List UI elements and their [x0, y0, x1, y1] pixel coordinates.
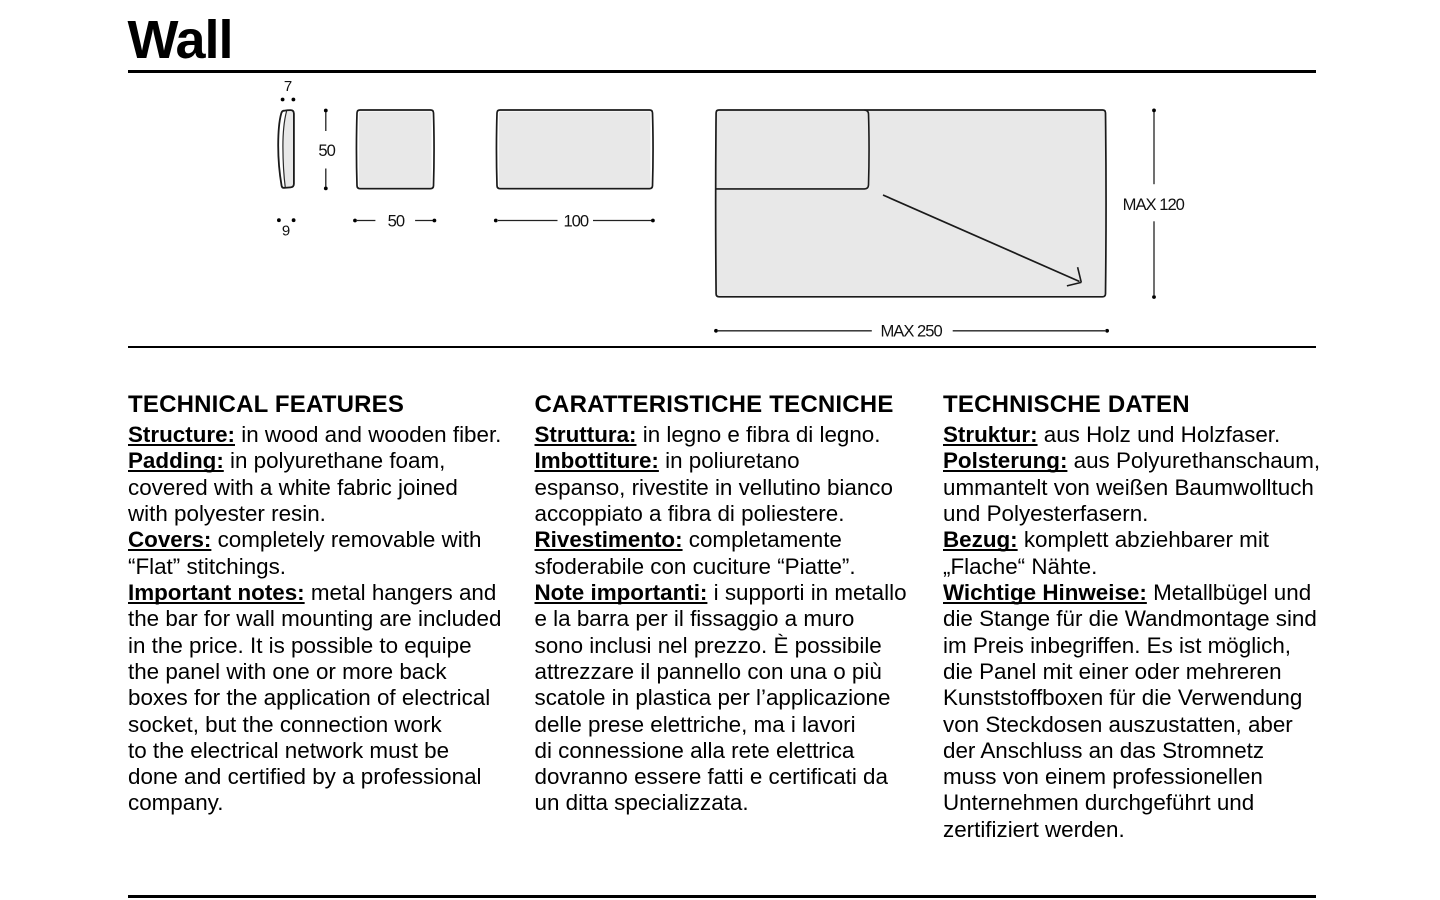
- svg-text:MAX 120: MAX 120: [1123, 195, 1185, 214]
- svg-text:9: 9: [282, 223, 290, 240]
- svg-text:7: 7: [284, 78, 292, 95]
- svg-text:50: 50: [318, 141, 335, 160]
- svg-text:50: 50: [388, 211, 405, 230]
- svg-text:MAX 250: MAX 250: [880, 322, 942, 341]
- svg-text:100: 100: [563, 211, 588, 230]
